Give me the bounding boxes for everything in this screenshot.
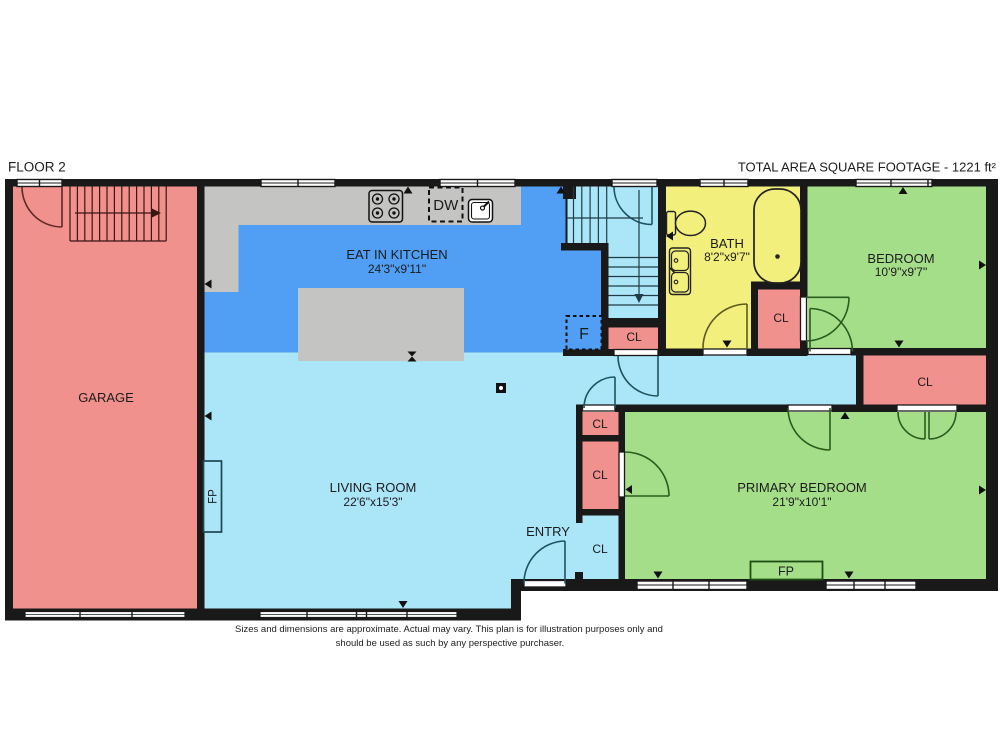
- svg-text:10'9"x9'7": 10'9"x9'7": [875, 265, 927, 279]
- svg-text:BATH: BATH: [710, 236, 744, 251]
- svg-text:should be used as such by any: should be used as such by any perspectiv…: [336, 638, 565, 649]
- svg-text:CL: CL: [592, 468, 608, 482]
- svg-text:FLOOR 2: FLOOR 2: [8, 160, 66, 175]
- svg-text:22'6"x15'3": 22'6"x15'3": [343, 495, 402, 509]
- svg-text:24'3"x9'11": 24'3"x9'11": [368, 262, 426, 276]
- svg-text:LIVING ROOM: LIVING ROOM: [330, 480, 417, 495]
- svg-text:F: F: [579, 326, 589, 343]
- svg-text:GARAGE: GARAGE: [78, 390, 134, 405]
- svg-text:CL: CL: [917, 375, 933, 389]
- svg-text:8'2"x9'7": 8'2"x9'7": [704, 250, 750, 264]
- svg-text:CL: CL: [773, 311, 789, 325]
- svg-text:ENTRY: ENTRY: [526, 524, 570, 539]
- svg-text:21'9"x10'1": 21'9"x10'1": [772, 495, 831, 509]
- svg-text:CL: CL: [626, 330, 642, 344]
- svg-text:DW: DW: [433, 197, 459, 214]
- svg-text:PRIMARY BEDROOM: PRIMARY BEDROOM: [737, 480, 867, 495]
- svg-text:FP: FP: [778, 565, 794, 579]
- svg-text:TOTAL AREA SQUARE FOOTAGE - 12: TOTAL AREA SQUARE FOOTAGE - 1221 ft²: [738, 160, 997, 175]
- svg-text:CL: CL: [592, 417, 608, 431]
- svg-text:FP: FP: [208, 489, 220, 504]
- svg-text:CL: CL: [592, 542, 608, 556]
- svg-text:BEDROOM: BEDROOM: [867, 251, 934, 266]
- svg-text:Sizes and dimensions are appro: Sizes and dimensions are approximate. Ac…: [235, 624, 663, 635]
- svg-text:EAT IN KITCHEN: EAT IN KITCHEN: [346, 247, 447, 262]
